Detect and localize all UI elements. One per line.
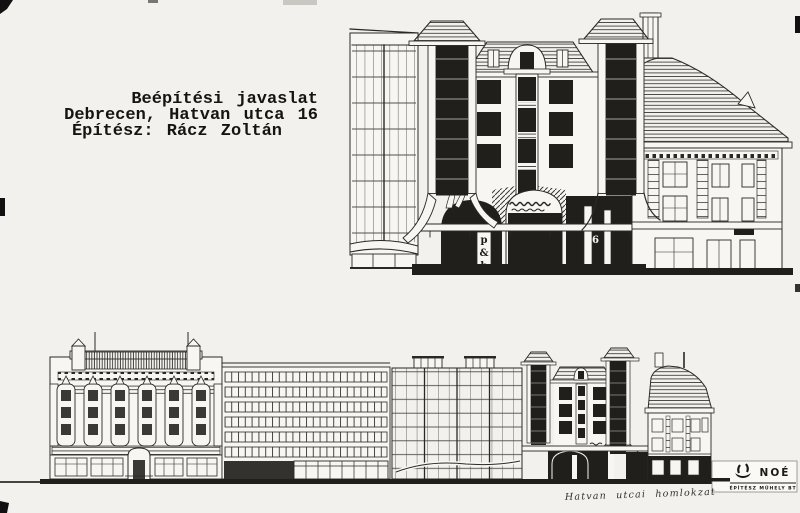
architectural-sheet: Beépítési javaslat Debrecen, Hatvan utca… [0, 0, 800, 513]
neighbor-grid-building [350, 29, 418, 269]
old-house-detail [626, 13, 792, 272]
shop-sign-letter-amp: & [479, 248, 488, 259]
stamp-name: NOÉ [760, 466, 791, 479]
proposed-building-small [521, 348, 650, 479]
shop-sign-letter-p: p [481, 235, 488, 246]
drawing-caption: Hatvan utcai homlokzat [564, 487, 716, 503]
house-number-label: 16 [585, 235, 599, 246]
old-house-small [645, 352, 714, 479]
curtain-wall-building [392, 356, 522, 479]
ground-line-street [40, 479, 713, 484]
slab-building [222, 363, 390, 479]
street-elevation-drawing [0, 332, 727, 484]
ground-line-detail [412, 264, 646, 275]
elevation-drawings: p & b 16 [0, 0, 800, 513]
ornate-building [50, 332, 222, 479]
detail-elevation-drawing: p & b 16 [350, 13, 793, 275]
